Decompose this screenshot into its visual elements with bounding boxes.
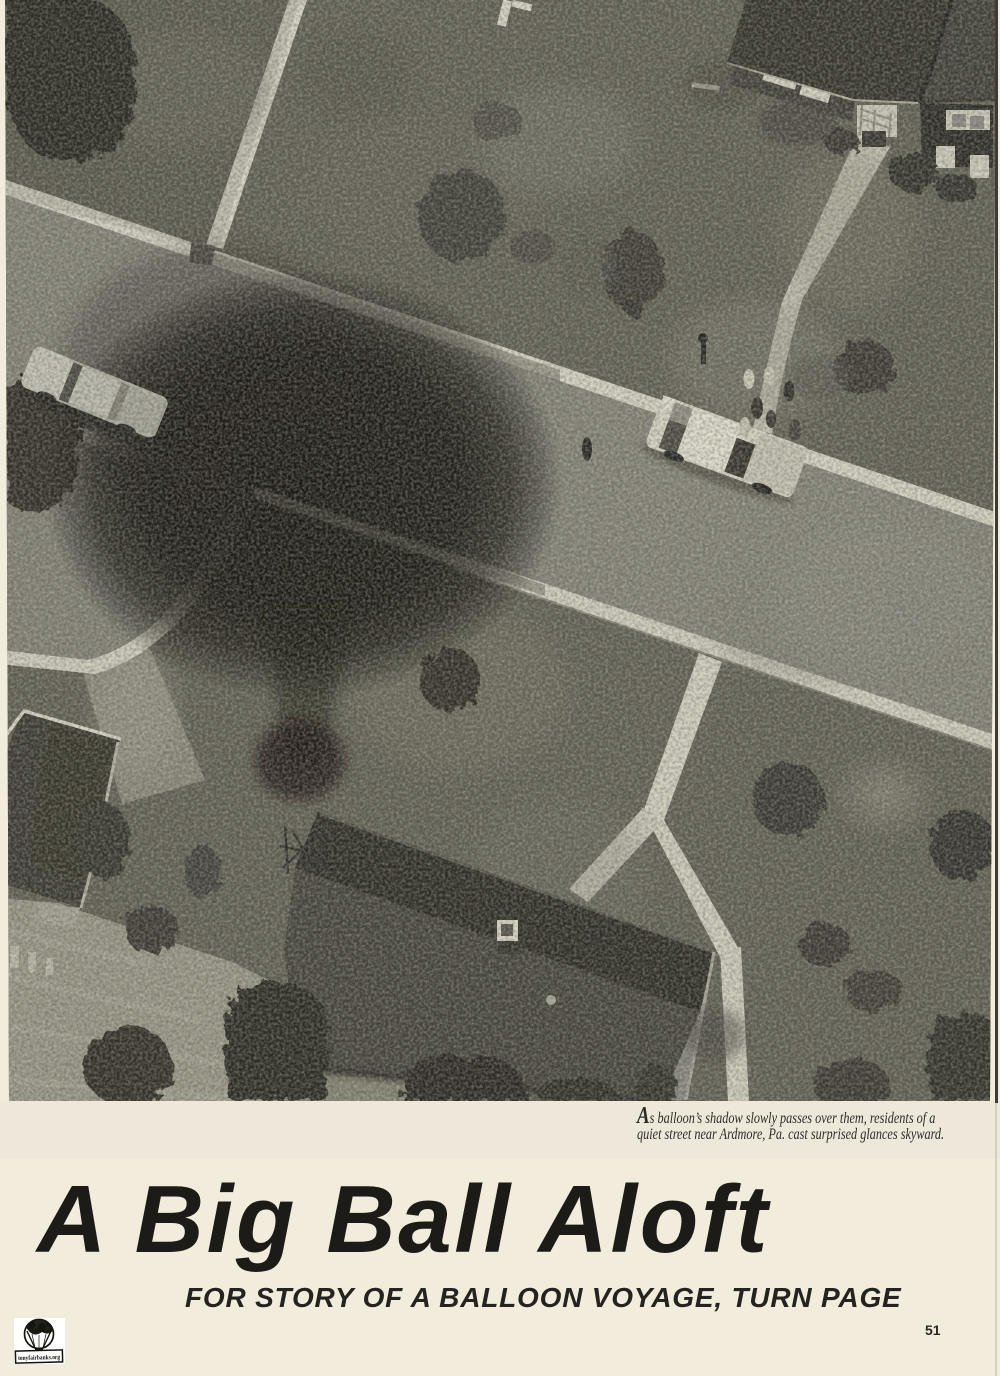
svg-text:tonyfairbanks.org: tonyfairbanks.org [18, 1354, 61, 1362]
